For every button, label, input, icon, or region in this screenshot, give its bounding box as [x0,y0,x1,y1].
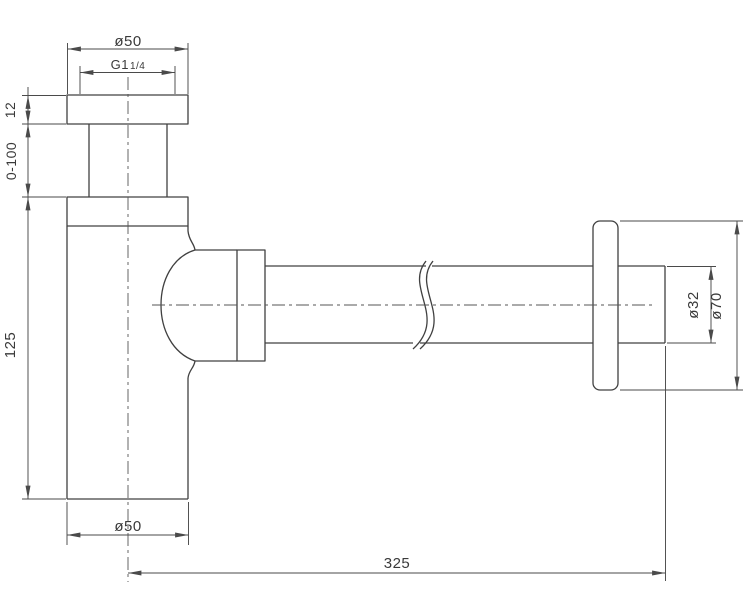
dim-label-body-diameter: ø50 [114,518,141,535]
inlet-flange [67,95,188,124]
dim-label-outlet-pipe-diameter: ø32 [685,291,702,318]
body-top-nut [67,197,188,226]
inlet-flange-outline [67,95,188,124]
dim-label-thread-size: G11/4 [111,57,146,72]
dim-label-body-height: 125 [2,332,19,359]
dim-overall-length: 325 [128,346,666,581]
technical-drawing-page: ø50 G11/4 12 0-100 125 ø [0,0,749,600]
body-top-nut-outline [67,197,188,226]
trap-cup-body [67,226,237,499]
centerlines [128,77,653,582]
outlet-ball-joint [161,226,195,378]
dim-label-flange-thickness: 12 [2,102,18,119]
dim-thread-size: G11/4 [80,57,175,94]
dim-label-adjustable-height: 0-100 [3,142,19,180]
dim-label-overall-length: 325 [384,555,411,572]
dim-label-inlet-flange-diameter: ø50 [114,33,141,50]
dim-label-wall-flange-diameter: ø70 [708,292,725,319]
dim-left-stack: 12 0-100 125 [2,87,66,499]
outlet-nut-outline [237,250,265,361]
bottle-trap-drawing: ø50 G11/4 12 0-100 125 ø [0,0,749,600]
outlet-nut [237,250,265,361]
wall-flange [593,221,665,390]
wall-flange-outline [593,221,618,390]
dim-wall-flange-diameter: ø70 [620,221,743,390]
